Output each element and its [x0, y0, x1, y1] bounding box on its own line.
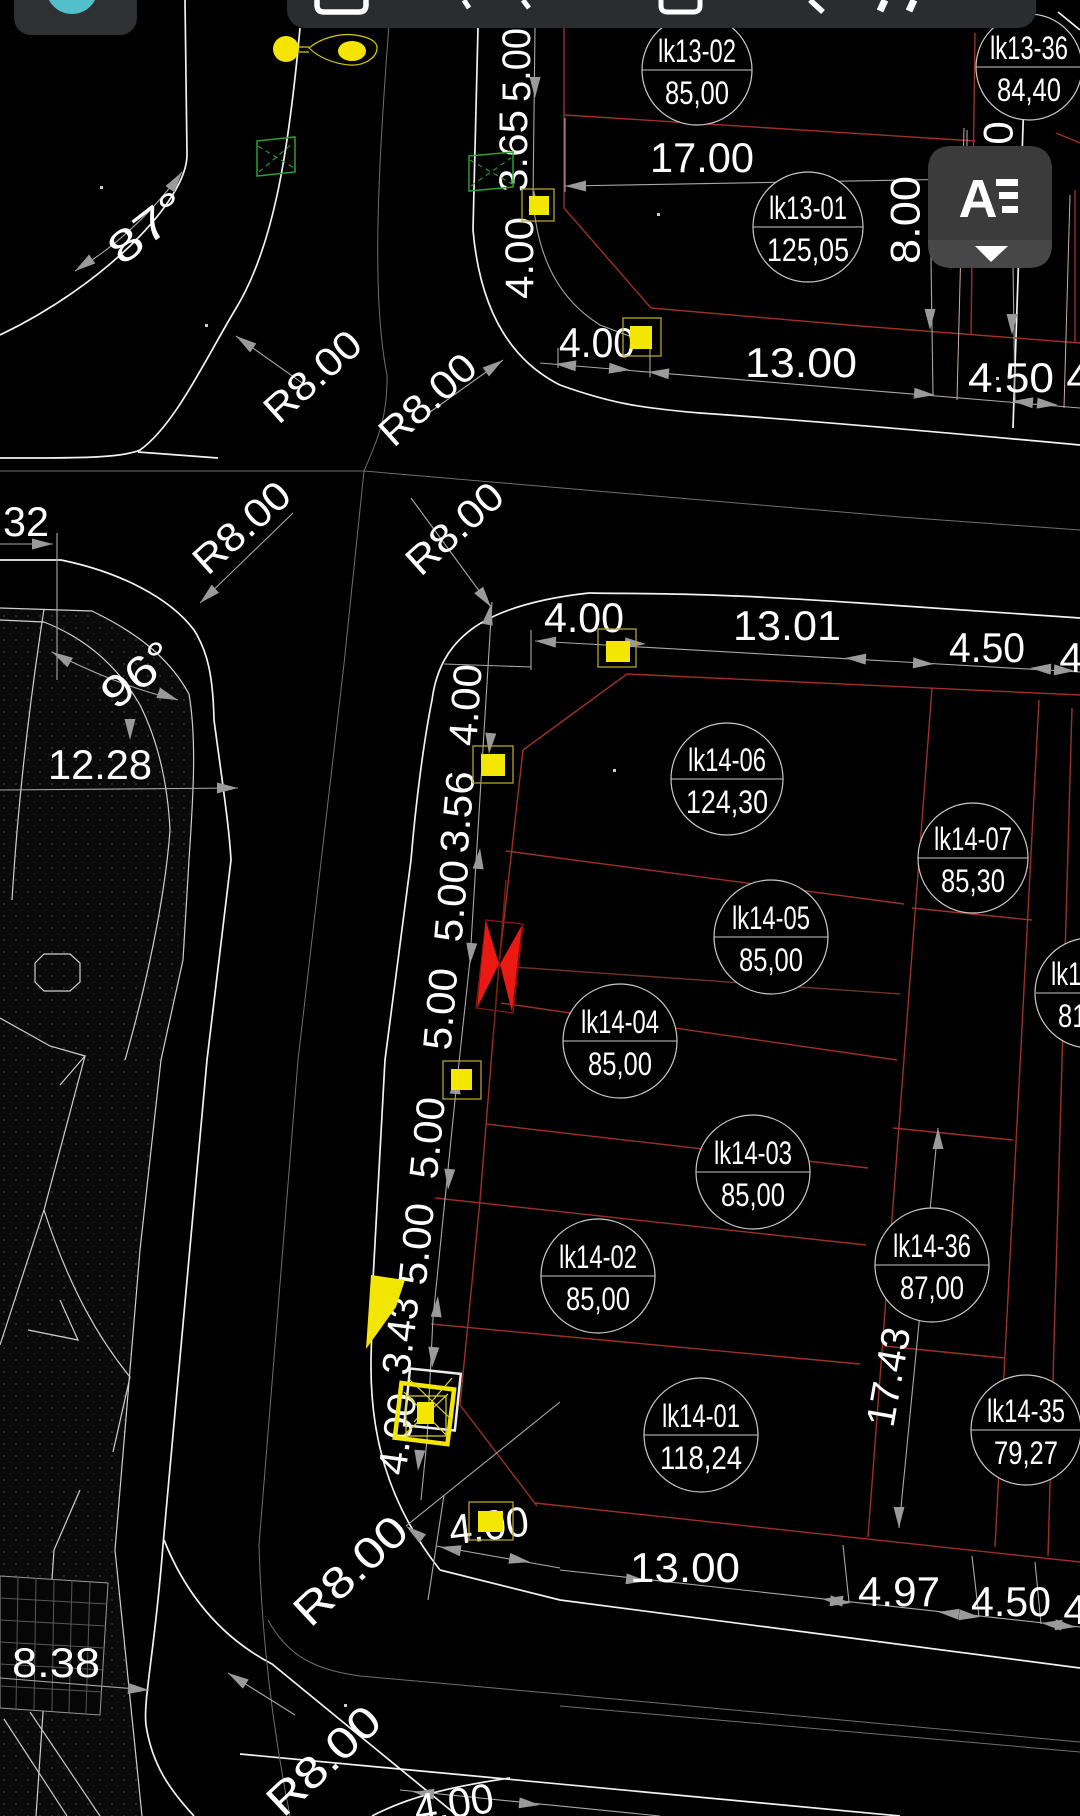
- svg-text:lk13-36: lk13-36: [990, 30, 1068, 66]
- svg-text:124,30: 124,30: [686, 784, 768, 820]
- svg-text:125,05: 125,05: [767, 232, 849, 268]
- svg-text:81,00: 81,00: [1058, 998, 1080, 1034]
- svg-text:lk14-02: lk14-02: [559, 1239, 637, 1275]
- svg-text:79,27: 79,27: [994, 1435, 1058, 1471]
- svg-text:3.65: 3.65: [492, 110, 536, 192]
- svg-text:4.00: 4.00: [441, 663, 491, 748]
- svg-text:87,00: 87,00: [900, 1270, 964, 1306]
- svg-text:85,00: 85,00: [588, 1046, 652, 1082]
- svg-text:lk14-04: lk14-04: [581, 1004, 659, 1040]
- svg-text:4.00: 4.00: [498, 217, 542, 299]
- svg-text:5.00: 5.00: [402, 1095, 454, 1181]
- svg-text:4: 4: [1059, 634, 1080, 681]
- svg-text:85,00: 85,00: [665, 75, 729, 111]
- svg-text:84,40: 84,40: [997, 72, 1061, 108]
- svg-text:4.50: 4.50: [968, 354, 1054, 401]
- svg-text:lk13-02: lk13-02: [658, 33, 736, 69]
- svg-text:4.50: 4.50: [949, 624, 1025, 671]
- svg-text:A: A: [959, 169, 998, 229]
- svg-text:12.28: 12.28: [48, 741, 152, 788]
- svg-text:85,00: 85,00: [721, 1177, 785, 1213]
- svg-text:lk14-36: lk14-36: [893, 1228, 971, 1264]
- svg-text:8.38: 8.38: [12, 1639, 100, 1686]
- svg-text:8.00: 8.00: [882, 176, 929, 264]
- svg-text:13.01: 13.01: [733, 602, 841, 649]
- svg-text:85,00: 85,00: [566, 1281, 630, 1317]
- svg-text:lk13-01: lk13-01: [769, 190, 847, 226]
- svg-text:5.00: 5.00: [427, 858, 478, 944]
- svg-text:13.00: 13.00: [745, 339, 857, 386]
- svg-text:4.00: 4.00: [544, 594, 624, 641]
- svg-text:5.00: 5.00: [391, 1201, 443, 1287]
- svg-text:3.56: 3.56: [433, 769, 484, 855]
- svg-text:32: 32: [3, 498, 49, 545]
- svg-text:lk14-08: lk14-08: [1051, 956, 1080, 992]
- svg-text:5.00: 5.00: [495, 28, 539, 102]
- svg-text:17.00: 17.00: [650, 134, 754, 181]
- svg-text:lk14-06: lk14-06: [688, 742, 766, 778]
- svg-text:4: 4: [1066, 354, 1080, 401]
- svg-text:13.00: 13.00: [630, 1544, 740, 1591]
- svg-text:85,00: 85,00: [739, 942, 803, 978]
- svg-text:4: 4: [1063, 1586, 1080, 1633]
- svg-text:4.50: 4.50: [971, 1578, 1051, 1625]
- svg-text:lk14-03: lk14-03: [714, 1135, 792, 1171]
- svg-text:5.00: 5.00: [416, 966, 467, 1052]
- svg-text:4.97: 4.97: [858, 1568, 940, 1615]
- svg-text:85,30: 85,30: [941, 863, 1005, 899]
- svg-text:0: 0: [975, 121, 1022, 144]
- svg-text:lk14-01: lk14-01: [662, 1398, 740, 1434]
- svg-text:lk14-35: lk14-35: [987, 1393, 1065, 1429]
- svg-text:lk14-07: lk14-07: [934, 821, 1012, 857]
- svg-text:118,24: 118,24: [660, 1440, 742, 1476]
- svg-text:lk14-05: lk14-05: [732, 900, 810, 936]
